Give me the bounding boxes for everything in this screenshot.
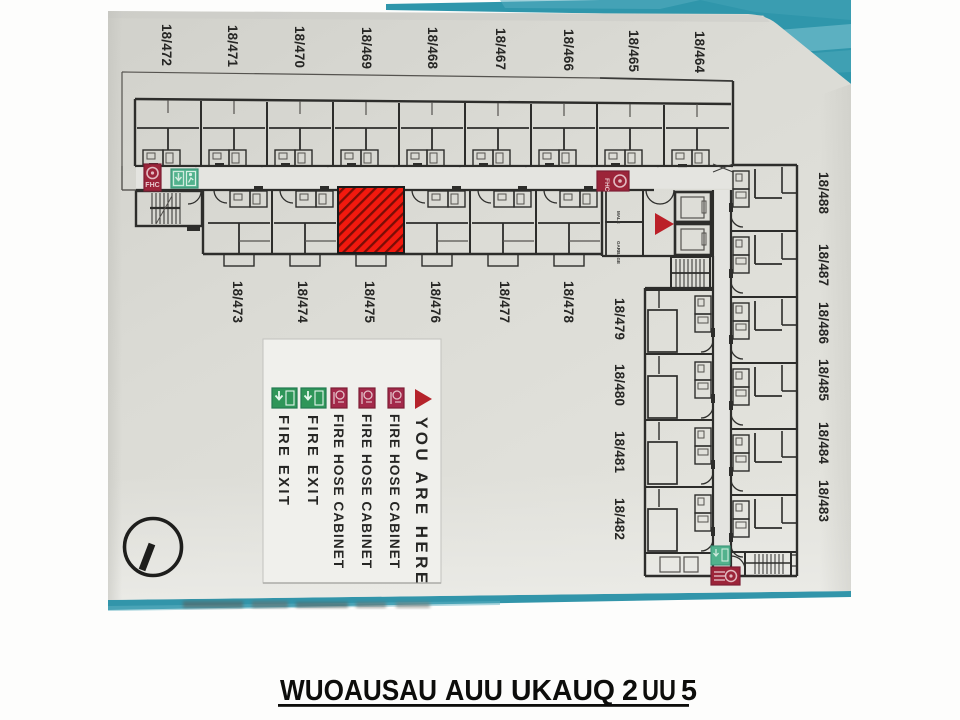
svg-text:18/479: 18/479 bbox=[612, 298, 627, 340]
svg-text:18/477: 18/477 bbox=[497, 281, 512, 323]
svg-text:18/483: 18/483 bbox=[816, 480, 831, 522]
svg-text:UU: UU bbox=[642, 675, 676, 707]
svg-text:18/484: 18/484 bbox=[816, 422, 831, 465]
svg-text:18/475: 18/475 bbox=[362, 281, 377, 324]
svg-text:18/476: 18/476 bbox=[428, 281, 443, 323]
svg-text:GARBAGE: GARBAGE bbox=[616, 241, 621, 264]
svg-text:FIRE HOSE CABINET: FIRE HOSE CABINET bbox=[331, 414, 346, 569]
svg-text:18/480: 18/480 bbox=[612, 364, 627, 406]
svg-text:FHC: FHC bbox=[603, 178, 610, 192]
svg-text:2: 2 bbox=[622, 675, 638, 707]
svg-text:18/478: 18/478 bbox=[561, 281, 576, 324]
svg-text:18/472: 18/472 bbox=[159, 24, 174, 66]
svg-text:18/482: 18/482 bbox=[612, 498, 627, 540]
svg-text:18/488: 18/488 bbox=[816, 172, 831, 215]
svg-text:WUOAUSAU: WUOAUSAU bbox=[280, 675, 437, 707]
svg-text:MALE: MALE bbox=[616, 211, 621, 224]
svg-text:18/464: 18/464 bbox=[692, 31, 707, 74]
svg-text:FHC: FHC bbox=[145, 182, 159, 189]
svg-text:UKAUQ: UKAUQ bbox=[511, 675, 615, 707]
svg-text:18/473: 18/473 bbox=[230, 281, 245, 323]
svg-text:18/485: 18/485 bbox=[816, 359, 831, 402]
svg-text:18/474: 18/474 bbox=[295, 281, 310, 324]
svg-text:18/465: 18/465 bbox=[626, 30, 641, 73]
svg-text:FIRE EXIT: FIRE EXIT bbox=[304, 415, 320, 507]
svg-text:FIRE HOSE CABINET: FIRE HOSE CABINET bbox=[387, 414, 402, 569]
svg-text:18/468: 18/468 bbox=[425, 27, 440, 70]
svg-text:18/467: 18/467 bbox=[493, 28, 508, 70]
svg-text:18/469: 18/469 bbox=[359, 27, 374, 69]
svg-text:FIRE HOSE CABINET: FIRE HOSE CABINET bbox=[359, 414, 374, 569]
svg-text:5: 5 bbox=[681, 675, 697, 707]
svg-text:18/470: 18/470 bbox=[292, 26, 307, 68]
svg-text:18/486: 18/486 bbox=[816, 302, 831, 344]
svg-text:18/487: 18/487 bbox=[816, 244, 831, 286]
svg-text:AUU: AUU bbox=[445, 675, 503, 707]
svg-text:18/471: 18/471 bbox=[225, 25, 240, 68]
svg-text:18/466: 18/466 bbox=[561, 29, 576, 71]
svg-text:FIRE EXIT: FIRE EXIT bbox=[275, 415, 291, 507]
svg-text:YOU ARE HERE: YOU ARE HERE bbox=[412, 417, 431, 587]
svg-text:18/481: 18/481 bbox=[612, 431, 627, 474]
